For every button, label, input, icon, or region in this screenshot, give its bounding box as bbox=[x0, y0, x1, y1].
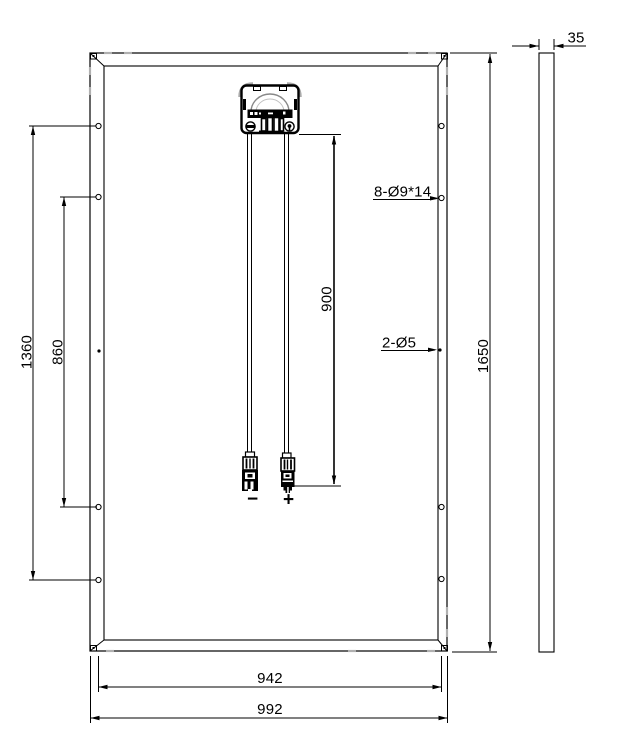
arrow-down bbox=[62, 498, 66, 507]
callout-mounting-holes-label: 8-Ø9*14 bbox=[374, 184, 431, 201]
corner-key-dot bbox=[444, 55, 446, 57]
terminal-mark bbox=[255, 112, 258, 115]
terminal-mark bbox=[259, 113, 261, 115]
port-negative-slot bbox=[247, 125, 255, 128]
dim-860-label: 860 bbox=[50, 339, 67, 365]
arrow-right bbox=[433, 685, 442, 689]
rib bbox=[274, 118, 279, 132]
arrow-right bbox=[439, 716, 448, 720]
dim-1650-label: 1650 bbox=[475, 339, 492, 373]
junction-box-screw-slot bbox=[243, 99, 246, 110]
connector-groove bbox=[283, 481, 294, 483]
arrow-left bbox=[99, 685, 108, 689]
grounding-hole bbox=[438, 348, 441, 351]
terminal-mark bbox=[268, 113, 273, 115]
connector-latch bbox=[286, 475, 290, 478]
cable-exit-ribs bbox=[259, 118, 284, 135]
grounding-hole bbox=[97, 349, 100, 352]
side-profile-view bbox=[539, 53, 554, 652]
negative-connector bbox=[242, 452, 258, 491]
callout-grounding-holes-label: 2-Ø5 bbox=[382, 335, 416, 352]
panel-rear-view bbox=[90, 53, 448, 651]
rib bbox=[280, 119, 284, 132]
arrow-down bbox=[488, 642, 492, 651]
arrow-left bbox=[91, 716, 100, 720]
dim-942-label: 942 bbox=[257, 670, 283, 687]
dim-35-label: 35 bbox=[567, 30, 584, 47]
terminal-mark bbox=[250, 112, 253, 115]
arrow-right bbox=[530, 44, 539, 48]
dimension-35: 35 bbox=[512, 30, 586, 51]
negative-polarity-label: − bbox=[247, 489, 258, 510]
dim-900-label: 900 bbox=[319, 286, 336, 312]
corner-key-dot bbox=[93, 647, 95, 649]
arrow-up bbox=[488, 54, 492, 63]
dim-992-label: 992 bbox=[257, 701, 283, 718]
dimension-942: 942 bbox=[99, 656, 442, 692]
arrow-down bbox=[31, 571, 35, 580]
dim-1360-label: 1360 bbox=[19, 335, 36, 369]
arrow-up bbox=[31, 126, 35, 135]
arrow-left bbox=[555, 44, 564, 48]
corner-key-dot bbox=[93, 55, 95, 57]
arrow-up bbox=[62, 197, 66, 206]
panel-outer-frame bbox=[90, 53, 447, 651]
positive-connector bbox=[281, 453, 295, 493]
callout-mounting-holes: 8-Ø9*14 bbox=[373, 184, 439, 201]
corner-key-dot bbox=[444, 647, 446, 649]
side-profile-outline bbox=[539, 53, 554, 652]
dimension-1650: 1650 bbox=[450, 53, 497, 652]
rib bbox=[268, 118, 273, 132]
port-positive-pin bbox=[289, 127, 291, 131]
rib bbox=[262, 119, 267, 132]
connector-latch bbox=[248, 474, 253, 478]
junction-box-screw-slot bbox=[294, 99, 297, 110]
junction-box bbox=[240, 84, 301, 135]
dimension-992: 992 bbox=[91, 656, 448, 723]
terminal-mark bbox=[283, 112, 286, 115]
positive-polarity-label: + bbox=[283, 490, 294, 511]
solar-panel-dimension-drawing: − + 1360 860 900 1650 bbox=[0, 0, 624, 751]
